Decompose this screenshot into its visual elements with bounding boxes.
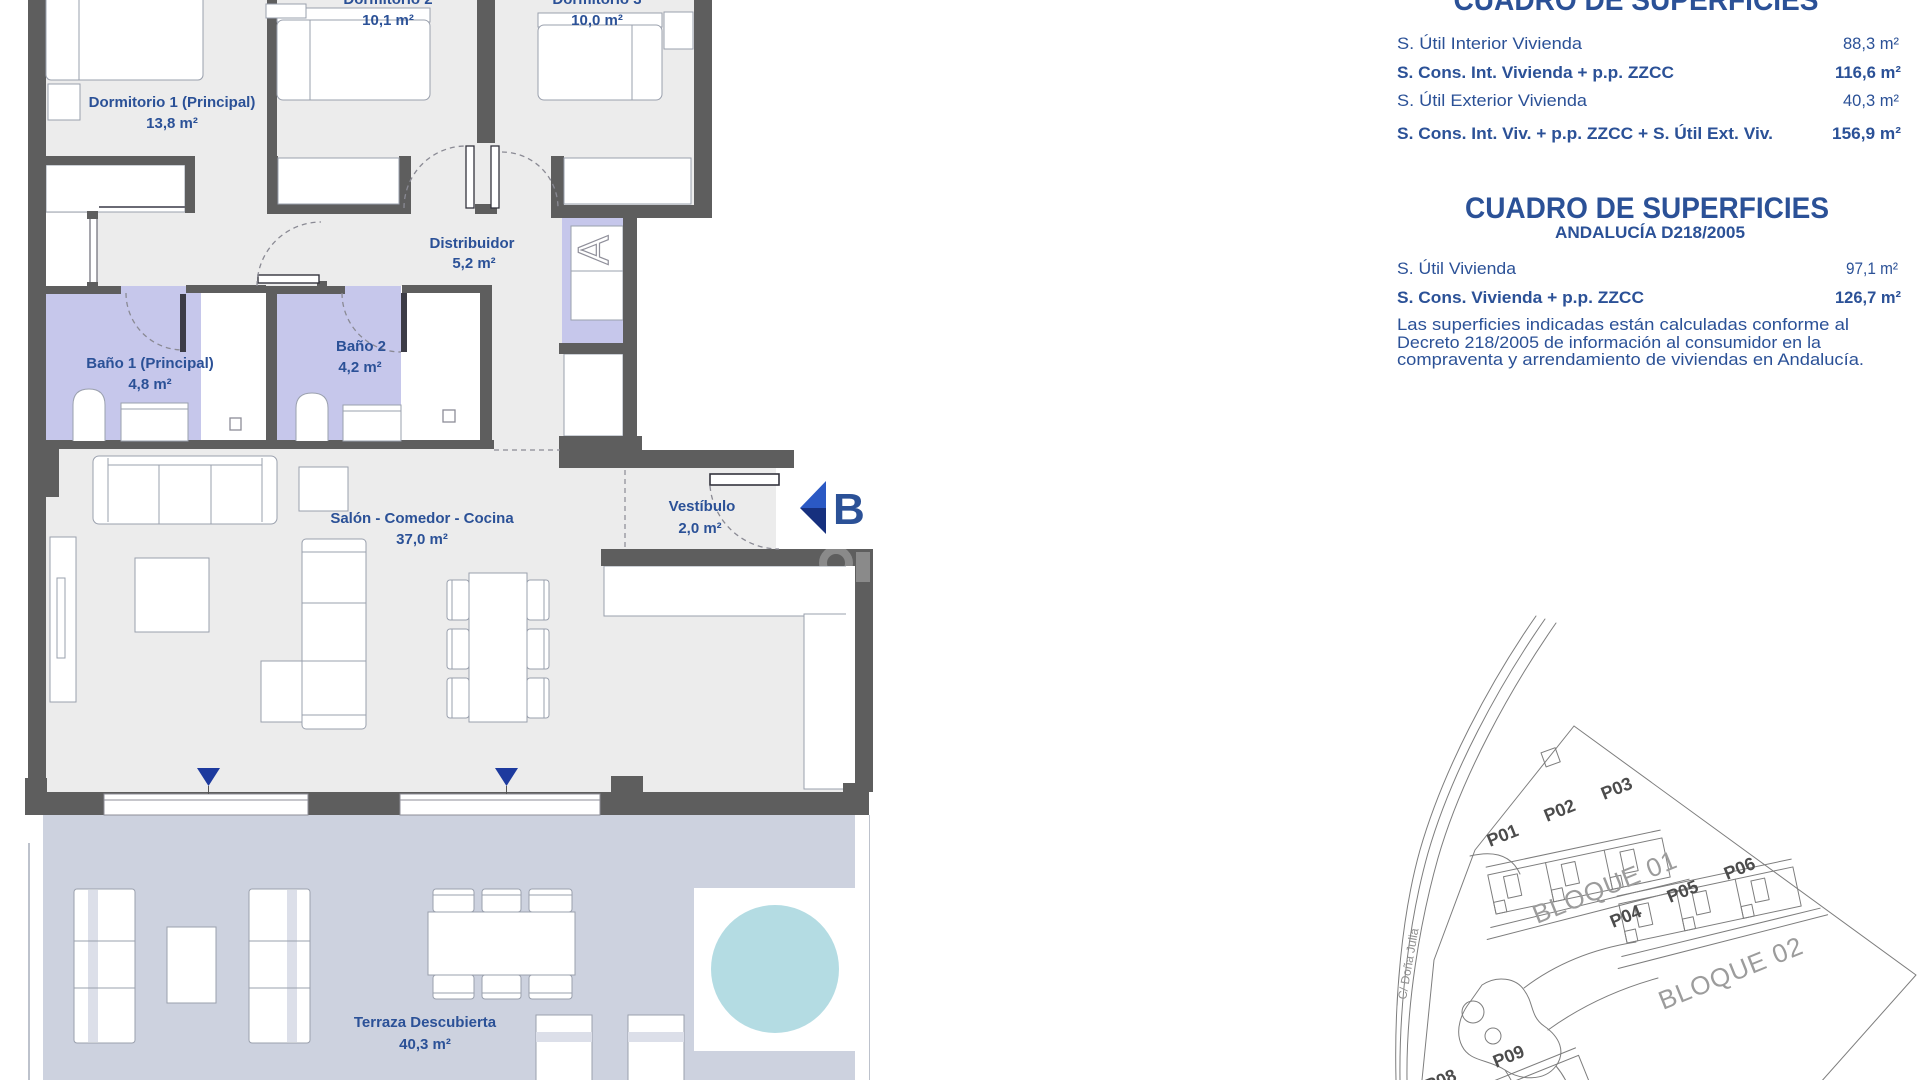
svg-text:Las superficies indicadas está: Las superficies indicadas están calculad… [1397,315,1849,334]
svg-text:10,0 m²: 10,0 m² [571,12,623,29]
svg-text:S. Útil Exterior Vivienda: S. Útil Exterior Vivienda [1397,91,1588,110]
svg-text:CUADRO DE SUPERFICIES: CUADRO DE SUPERFICIES [1454,0,1819,17]
svg-text:S. Cons. Int. Vivienda + p.p.: S. Cons. Int. Vivienda + p.p. ZZCC [1397,63,1674,82]
svg-text:88,3 m²: 88,3 m² [1843,34,1899,53]
svg-text:P06: P06 [1721,853,1758,884]
svg-text:5,2 m²: 5,2 m² [452,255,495,272]
svg-text:156,9 m²: 156,9 m² [1832,124,1901,143]
svg-text:B: B [833,485,865,534]
svg-text:Distribuidor: Distribuidor [430,235,515,252]
svg-text:Baño 1 (Principal): Baño 1 (Principal) [86,355,214,372]
svg-text:Dormitorio 3: Dormitorio 3 [552,0,641,8]
svg-text:40,3 m²: 40,3 m² [1843,91,1899,110]
svg-text:4,2 m²: 4,2 m² [338,359,381,376]
svg-text:P05: P05 [1664,876,1701,907]
svg-text:Salón - Comedor - Cocina: Salón - Comedor - Cocina [330,510,514,527]
svg-text:126,7 m²: 126,7 m² [1835,288,1901,307]
svg-text:37,0 m²: 37,0 m² [396,531,448,548]
svg-text:P09: P09 [1490,1041,1527,1072]
svg-text:S. Cons. Vivienda + p.p. ZZCC: S. Cons. Vivienda + p.p. ZZCC [1397,288,1644,307]
svg-text:97,1 m²: 97,1 m² [1846,259,1898,278]
svg-text:CUADRO DE SUPERFICIES: CUADRO DE SUPERFICIES [1465,192,1829,225]
svg-text:P03: P03 [1598,773,1635,804]
svg-text:2,0 m²: 2,0 m² [678,520,721,537]
svg-text:S. Útil Interior Vivienda: S. Útil Interior Vivienda [1397,34,1583,53]
svg-text:P02: P02 [1541,795,1578,826]
svg-text:Dormitorio 1 (Principal): Dormitorio 1 (Principal) [89,94,256,111]
svg-text:compraventa y arrendamiento de: compraventa y arrendamiento de viviendas… [1397,350,1864,369]
svg-text:13,8 m²: 13,8 m² [146,115,198,132]
svg-text:116,6 m²: 116,6 m² [1835,63,1901,82]
svg-text:ANDALUCÍA D218/2005: ANDALUCÍA D218/2005 [1555,223,1745,242]
svg-text:10,1 m²: 10,1 m² [362,12,414,29]
svg-text:Dormitorio 2: Dormitorio 2 [343,0,432,8]
svg-text:Vestíbulo: Vestíbulo [669,498,736,515]
svg-text:C/ Doña Julia: C/ Doña Julia [1395,927,1421,1001]
svg-text:S. Cons. Int. Viv. + p.p. ZZCC: S. Cons. Int. Viv. + p.p. ZZCC + S. Útil… [1397,124,1773,143]
svg-text:Baño 2: Baño 2 [336,338,386,355]
svg-text:P01: P01 [1484,820,1521,851]
svg-text:S. Útil Vivienda: S. Útil Vivienda [1397,259,1517,278]
svg-text:40,3 m²: 40,3 m² [399,1036,451,1053]
svg-text:Terraza Descubierta: Terraza Descubierta [354,1014,497,1031]
svg-text:A: A [570,235,619,265]
svg-text:4,8 m²: 4,8 m² [128,376,171,393]
svg-text:P08: P08 [1422,1065,1459,1080]
